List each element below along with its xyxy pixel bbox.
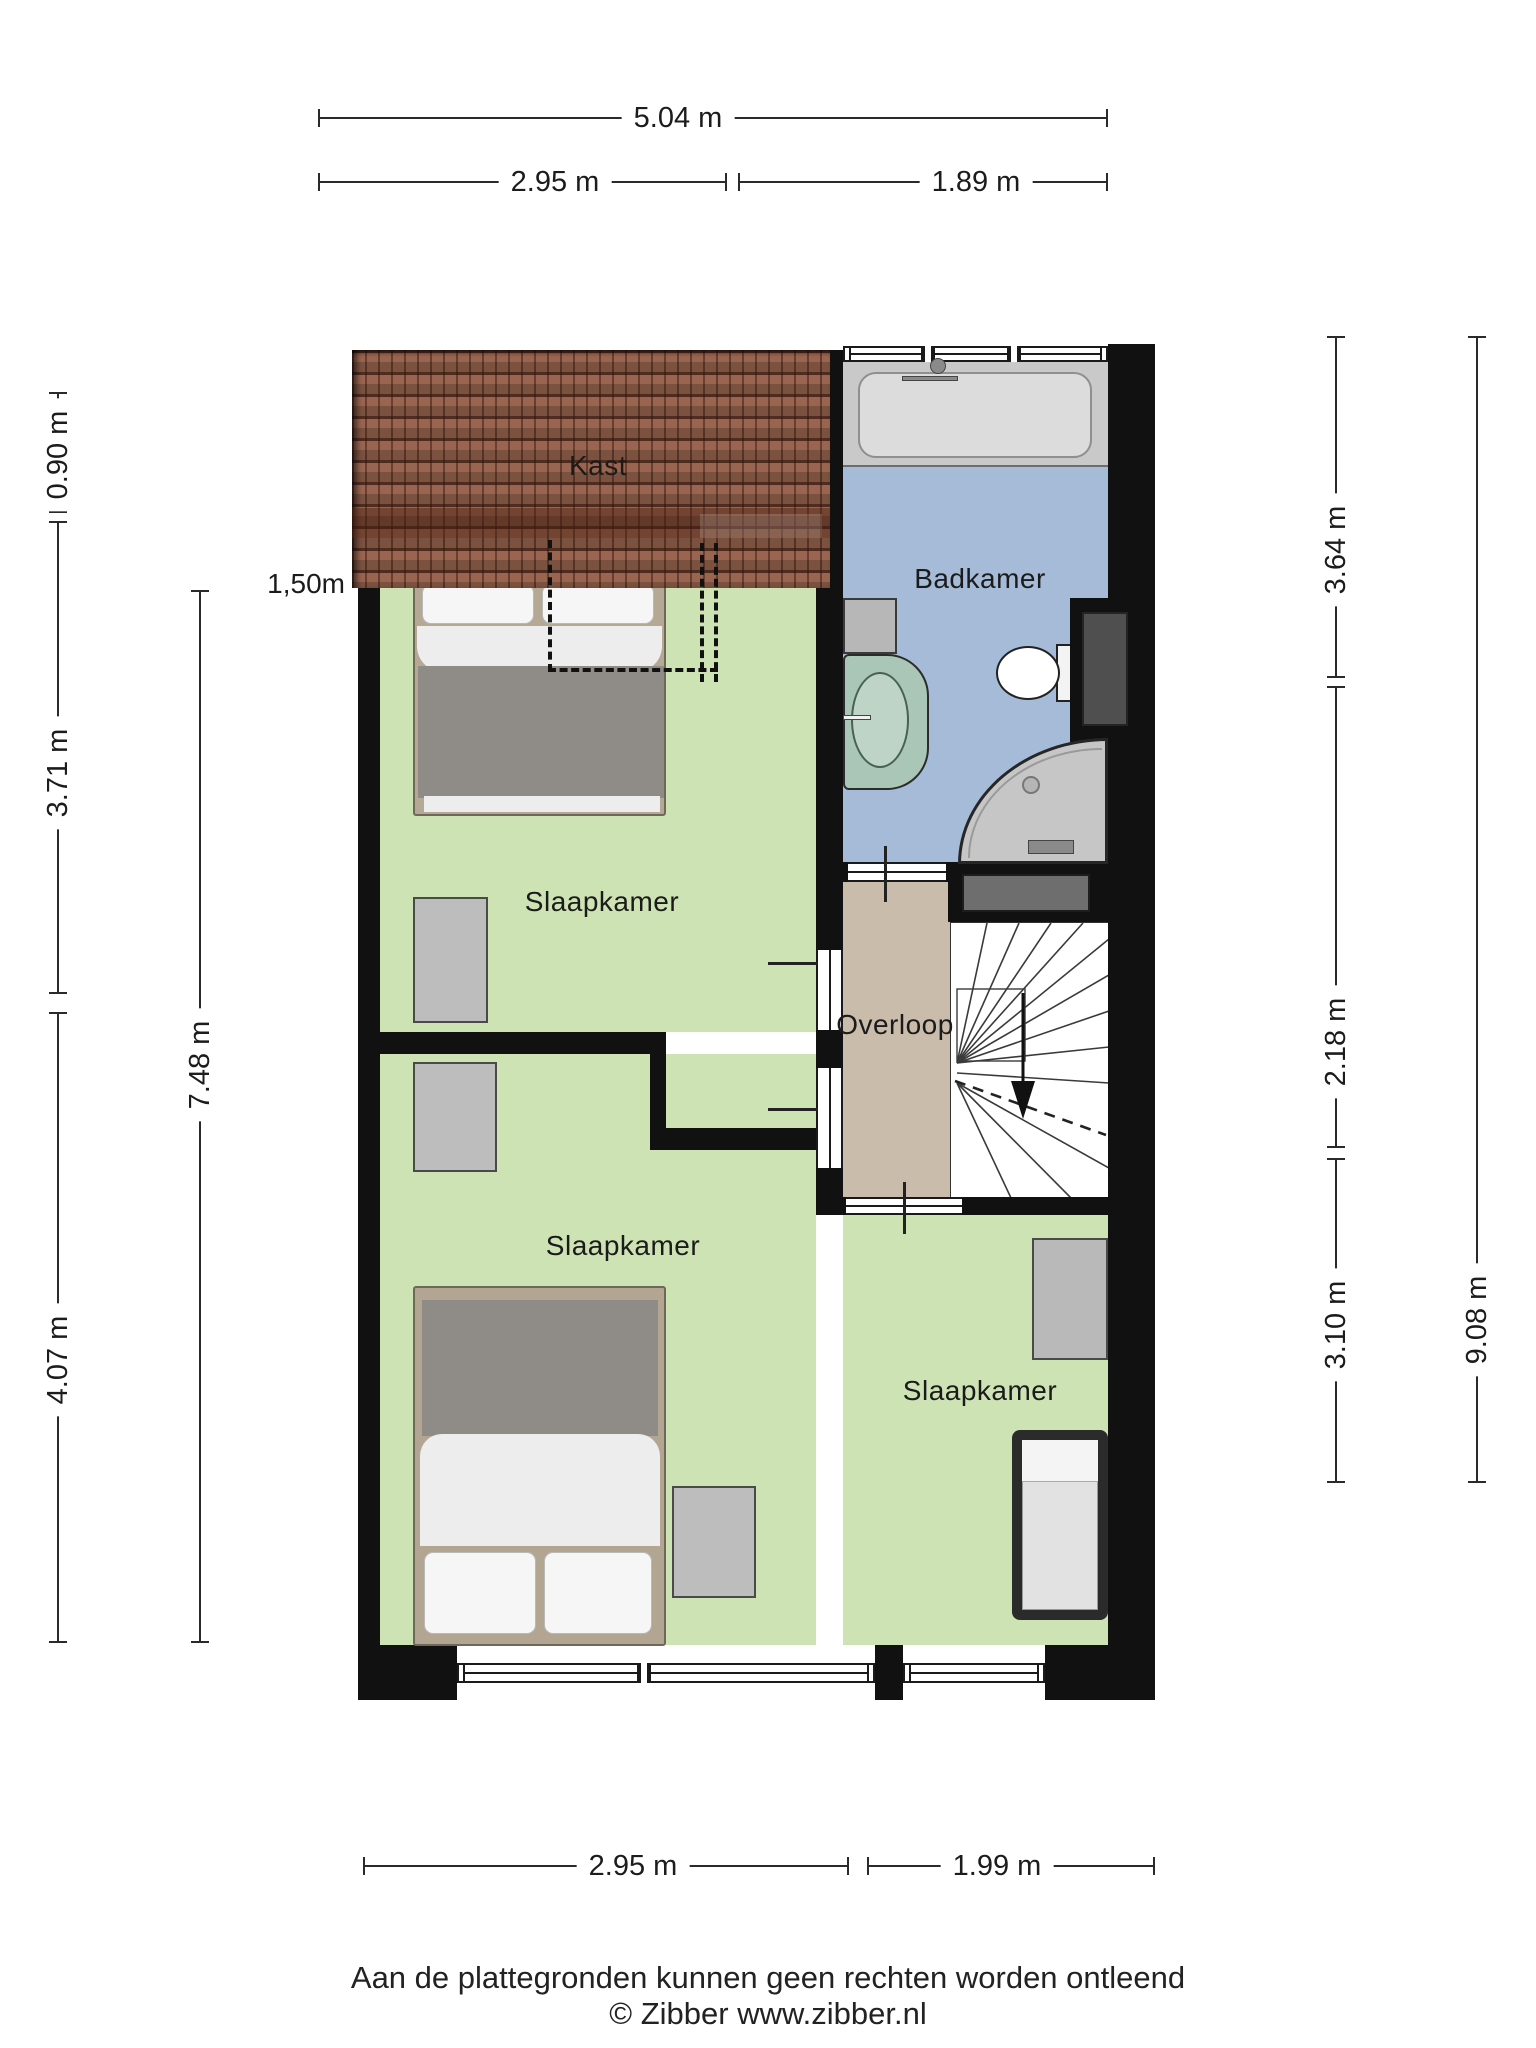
footer-disclaimer: Aan de plattegronden kunnen geen rechten… (0, 1960, 1536, 1996)
bathtub-faucet-bar (902, 376, 958, 381)
wall-bedroom-divider-jog (650, 1032, 666, 1150)
bathtub-faucet-knob (930, 358, 946, 374)
bed2-sheet (420, 1434, 660, 1546)
bed2-blanket (422, 1300, 658, 1436)
door-bathroom (848, 862, 946, 882)
room-label-slaapkamer-3: Slaapkamer (850, 1375, 1110, 1407)
shower-faucet (1028, 840, 1074, 854)
nightstand-bedroom2 (672, 1486, 756, 1598)
dresser-bedroom2 (413, 1062, 497, 1172)
room-label-slaapkamer-1: Slaapkamer (472, 886, 732, 918)
toilet (996, 646, 1060, 700)
headroom-dashed-line (548, 668, 718, 672)
room-label-kast: Kast (498, 450, 698, 482)
stairs (951, 923, 1109, 1198)
bed3-pillow (1022, 1440, 1098, 1482)
washbasin-faucet (843, 715, 871, 720)
door-bedroom2-tick (768, 1108, 818, 1111)
door-bedroom2 (816, 1068, 843, 1168)
headroom-dashed-line (714, 543, 718, 682)
window-bedroom2 (457, 1645, 875, 1700)
bed1-foot-sheet (424, 796, 660, 812)
window-bathroom-top (843, 344, 1108, 364)
headroom-dashed-line (548, 540, 552, 672)
bedroom1-floor-pocket (666, 1054, 816, 1128)
door-bedroom1-tick (768, 962, 818, 965)
window-mullion (637, 1663, 651, 1683)
room-label-overloop: Overloop (795, 1009, 995, 1041)
bed1-blanket (418, 666, 664, 798)
washbasin-cabinet (843, 598, 897, 654)
room-label-slaapkamer-2: Slaapkamer (493, 1230, 753, 1262)
stairwell (950, 922, 1110, 1199)
wall-bedroom-divider-right (666, 1128, 816, 1150)
bed2-pillow-left (424, 1552, 536, 1634)
headroom-dashed-line (700, 543, 704, 682)
window-mullion (1007, 346, 1021, 362)
bathtub (858, 372, 1092, 458)
headroom-annotation: 1,50m (245, 568, 345, 600)
door-bathroom-pivot (884, 846, 887, 902)
wall-right (1108, 344, 1155, 1700)
stairs-down-arrow (1011, 993, 1035, 1119)
desk-bedroom3 (1032, 1238, 1108, 1360)
floorplan-canvas: Kast Badkamer Slaapkamer Overloop Slaapk… (0, 0, 1536, 2048)
bed1-pillow-left (422, 584, 534, 624)
footer-copyright: © Zibber www.zibber.nl (0, 1996, 1536, 2032)
stairs-top-landing (962, 874, 1090, 912)
bed1-pillow-right (542, 584, 654, 624)
wall-niche (1082, 612, 1128, 726)
window-bedroom3 (903, 1645, 1045, 1700)
bed2-pillow-right (544, 1552, 652, 1634)
washbasin-bowl (851, 672, 909, 768)
room-label-badkamer: Badkamer (880, 563, 1080, 595)
door-bedroom3-pivot (903, 1182, 906, 1234)
roof-light-band (700, 514, 822, 538)
shower-drain (1022, 776, 1040, 794)
wall-landing-left-a (816, 882, 843, 955)
wall-bedroom-divider-left (380, 1032, 650, 1054)
